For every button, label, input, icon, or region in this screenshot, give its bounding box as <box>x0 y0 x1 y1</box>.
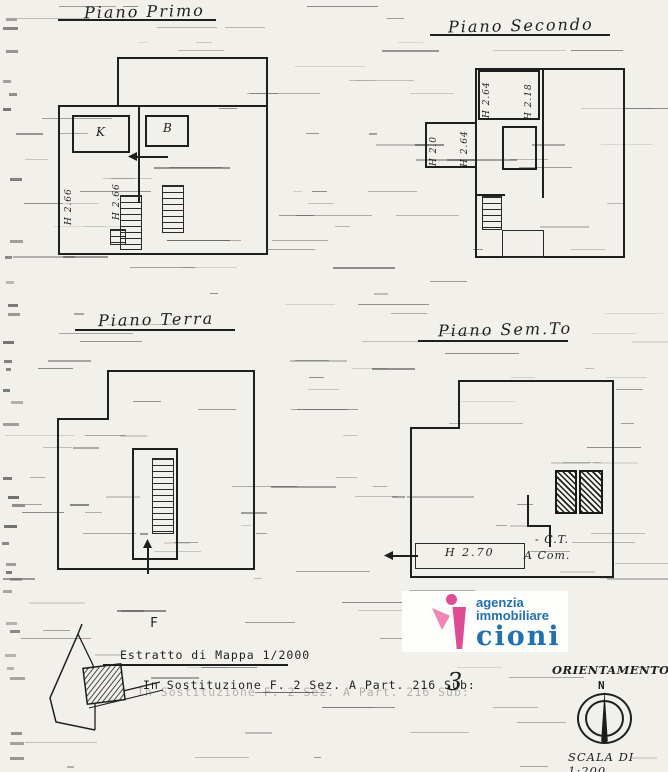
height-label: H 2.66 <box>64 163 74 225</box>
logo-person-icon <box>432 594 470 649</box>
title-underline <box>430 34 610 36</box>
room-walls <box>502 126 537 170</box>
staircase <box>162 185 184 233</box>
title-underline <box>75 329 235 331</box>
map-extract-note: Estratto di Mappa 1/2000 <box>120 648 310 662</box>
room-label-b: B <box>163 121 172 135</box>
staircase-hatched <box>555 470 577 514</box>
wall <box>107 370 255 372</box>
note-underline <box>103 664 288 666</box>
title-piano-sem: Piano Sem.To <box>438 319 573 341</box>
height-label: H 2.18 <box>524 75 534 120</box>
document-content: Piano Primo Piano Secondo Piano Terra Pi… <box>0 0 668 772</box>
height-label: H 2.64 <box>460 125 470 167</box>
wall <box>57 568 255 570</box>
wall <box>253 370 255 570</box>
staircase-hatched <box>579 470 603 514</box>
scanned-floor-plan-document: Piano Primo Piano Secondo Piano Terra Pi… <box>0 0 668 772</box>
floor-plan-piano-seminterrato: H 2.70 - C.T. A Com. <box>400 375 622 587</box>
agency-logo: agenzia immobiliare cioni <box>402 591 568 652</box>
scale-label: SCALA DI 1:200 <box>568 750 668 772</box>
compass-rose <box>576 691 634 747</box>
sub-number: 3 <box>447 668 462 696</box>
f-label: F <box>150 616 158 631</box>
wall <box>527 525 551 527</box>
height-label: H 2.64 <box>482 73 492 118</box>
height-label: H 2.70 <box>445 546 495 559</box>
orientation-title: ORIENTAMENTO <box>552 663 668 677</box>
title-piano-terra: Piano Terra <box>98 309 215 330</box>
logo-text-cioni: cioni <box>476 623 561 650</box>
staircase <box>152 458 174 534</box>
a-com-label: A Com. <box>524 549 570 562</box>
title-underline <box>58 19 216 21</box>
title-underline <box>418 340 568 342</box>
wall <box>57 418 59 570</box>
porch-walls <box>502 230 544 258</box>
floor-plan-piano-secondo: H 2.64 H 2.18 H 2.0 H 2.64 <box>420 60 632 270</box>
wall <box>410 576 614 578</box>
wall <box>458 380 612 382</box>
wall <box>612 380 614 578</box>
floor-plan-piano-primo: K B H 2.66 H 2.66 <box>50 55 275 270</box>
floor-plan-piano-terra <box>50 365 260 580</box>
logo-text-block: agenzia immobiliare cioni <box>476 596 561 650</box>
staircase <box>110 229 126 245</box>
wall <box>542 68 544 198</box>
ct-label: - C.T. <box>535 533 569 546</box>
wall <box>107 370 109 420</box>
room-label-k: K <box>96 125 105 139</box>
substitution-note: In Sostituzione F. 2 Sez. A Part. 216 Su… <box>143 678 476 692</box>
staircase <box>482 196 502 230</box>
wall <box>57 418 109 420</box>
wall <box>410 427 460 429</box>
wall <box>527 495 529 527</box>
wall <box>138 107 140 202</box>
height-label: H 2.0 <box>429 126 439 166</box>
wall <box>458 380 460 429</box>
wall <box>117 57 268 107</box>
